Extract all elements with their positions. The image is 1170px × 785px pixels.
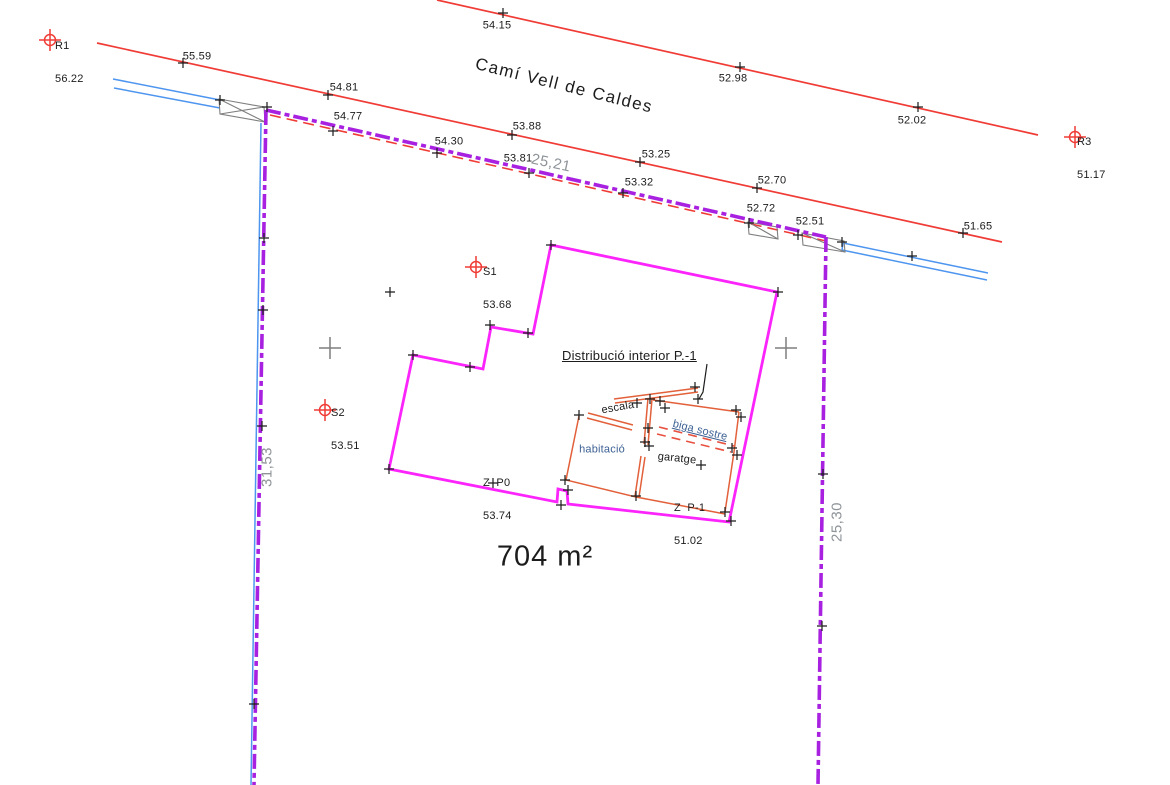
room-label-habitacio: habitació <box>579 445 625 456</box>
floor-level-P-1: Z P-1 51.02 <box>674 481 705 569</box>
floor-level-P0: Z P0 53.74 <box>483 456 512 544</box>
elevation-label: 53.81 <box>504 154 533 165</box>
interior-title-leader <box>699 364 707 399</box>
interior-title: Distribució interior P.-1 <box>562 350 697 361</box>
station-point-S2: S2 53.51 <box>331 386 360 474</box>
elevation-label: 53.88 <box>513 122 542 133</box>
service-lines <box>113 79 988 785</box>
station-point-S1: S1 53.68 <box>483 245 512 333</box>
dimension-west: 31,53 <box>262 447 273 487</box>
elevation-label: 52.51 <box>796 217 825 228</box>
elevation-label: 51.65 <box>964 222 993 233</box>
reference-point-R3: R3 51.17 <box>1077 115 1106 203</box>
elevation-label: 52.70 <box>758 176 787 187</box>
plan-linework <box>0 0 1170 785</box>
elevation-label: 54.77 <box>334 112 363 123</box>
grid-crosses <box>319 337 797 359</box>
elevation-label: 53.25 <box>642 150 671 161</box>
building-outline <box>389 245 777 522</box>
elevation-label: 52.02 <box>898 116 927 127</box>
elevation-label: 54.81 <box>330 83 359 94</box>
site-plan: Camí Vell de Caldes 54.15 52.98 52.02 55… <box>0 0 1170 785</box>
elevation-label: 52.98 <box>719 74 748 85</box>
dimension-east: 25,30 <box>832 502 843 542</box>
elevation-label: 53.32 <box>625 178 654 189</box>
elevation-label: 54.30 <box>435 137 464 148</box>
fence-dashed-line <box>270 115 826 241</box>
elevation-label: 54.15 <box>483 21 512 32</box>
parcel-area-label: 704 m² <box>497 552 593 563</box>
elevation-label: 55.59 <box>183 52 212 63</box>
reference-point-R1: R1 56.22 <box>55 19 84 107</box>
elevation-label: 52.72 <box>747 204 776 215</box>
